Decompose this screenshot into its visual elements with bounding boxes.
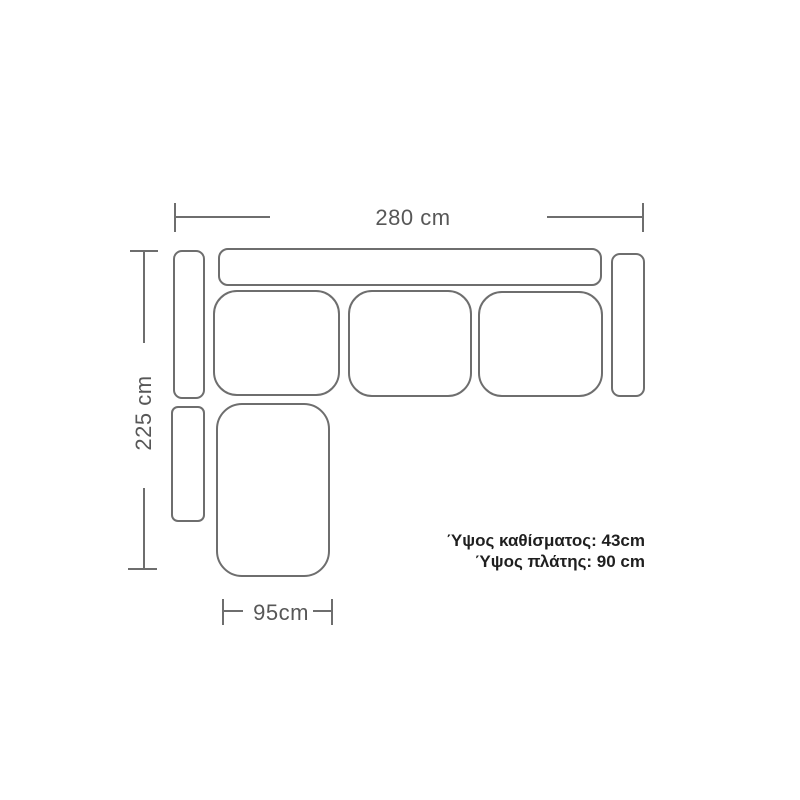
- sofa-dimension-diagram: 280 cm 225 cm 95cm Ύψος καθίσματος: 43cm…: [0, 0, 800, 800]
- dimension-label-chaise-width: 95cm: [231, 600, 331, 626]
- dim-line-left-segment: [175, 216, 270, 218]
- seat-cushion-2: [348, 290, 472, 397]
- right-armrest: [611, 253, 645, 397]
- dim-tick-right: [642, 203, 644, 232]
- dim-line-top-segment: [143, 251, 145, 343]
- dimension-label-overall-width: 280 cm: [363, 205, 463, 231]
- dim-line-right-segment: [547, 216, 642, 218]
- seat-cushion-3: [478, 291, 603, 397]
- dim-line-bottom-segment: [143, 488, 145, 570]
- chaise-seat: [216, 403, 330, 577]
- seat-cushion-1: [213, 290, 340, 396]
- dim-tick-left: [222, 599, 224, 625]
- dimension-label-overall-depth: 225 cm: [131, 375, 157, 450]
- height-notes: Ύψος καθίσματος: 43cm Ύψος πλάτης: 90 cm: [447, 530, 645, 572]
- dim-line-right-segment: [313, 610, 333, 612]
- note-seat-height: Ύψος καθίσματος: 43cm: [447, 530, 645, 551]
- back-cushion: [218, 248, 602, 286]
- dim-tick-bottom: [128, 568, 157, 570]
- left-armrest-upper: [173, 250, 205, 399]
- note-back-height: Ύψος πλάτης: 90 cm: [447, 551, 645, 572]
- dim-tick-right: [331, 599, 333, 625]
- left-armrest-lower: [171, 406, 205, 522]
